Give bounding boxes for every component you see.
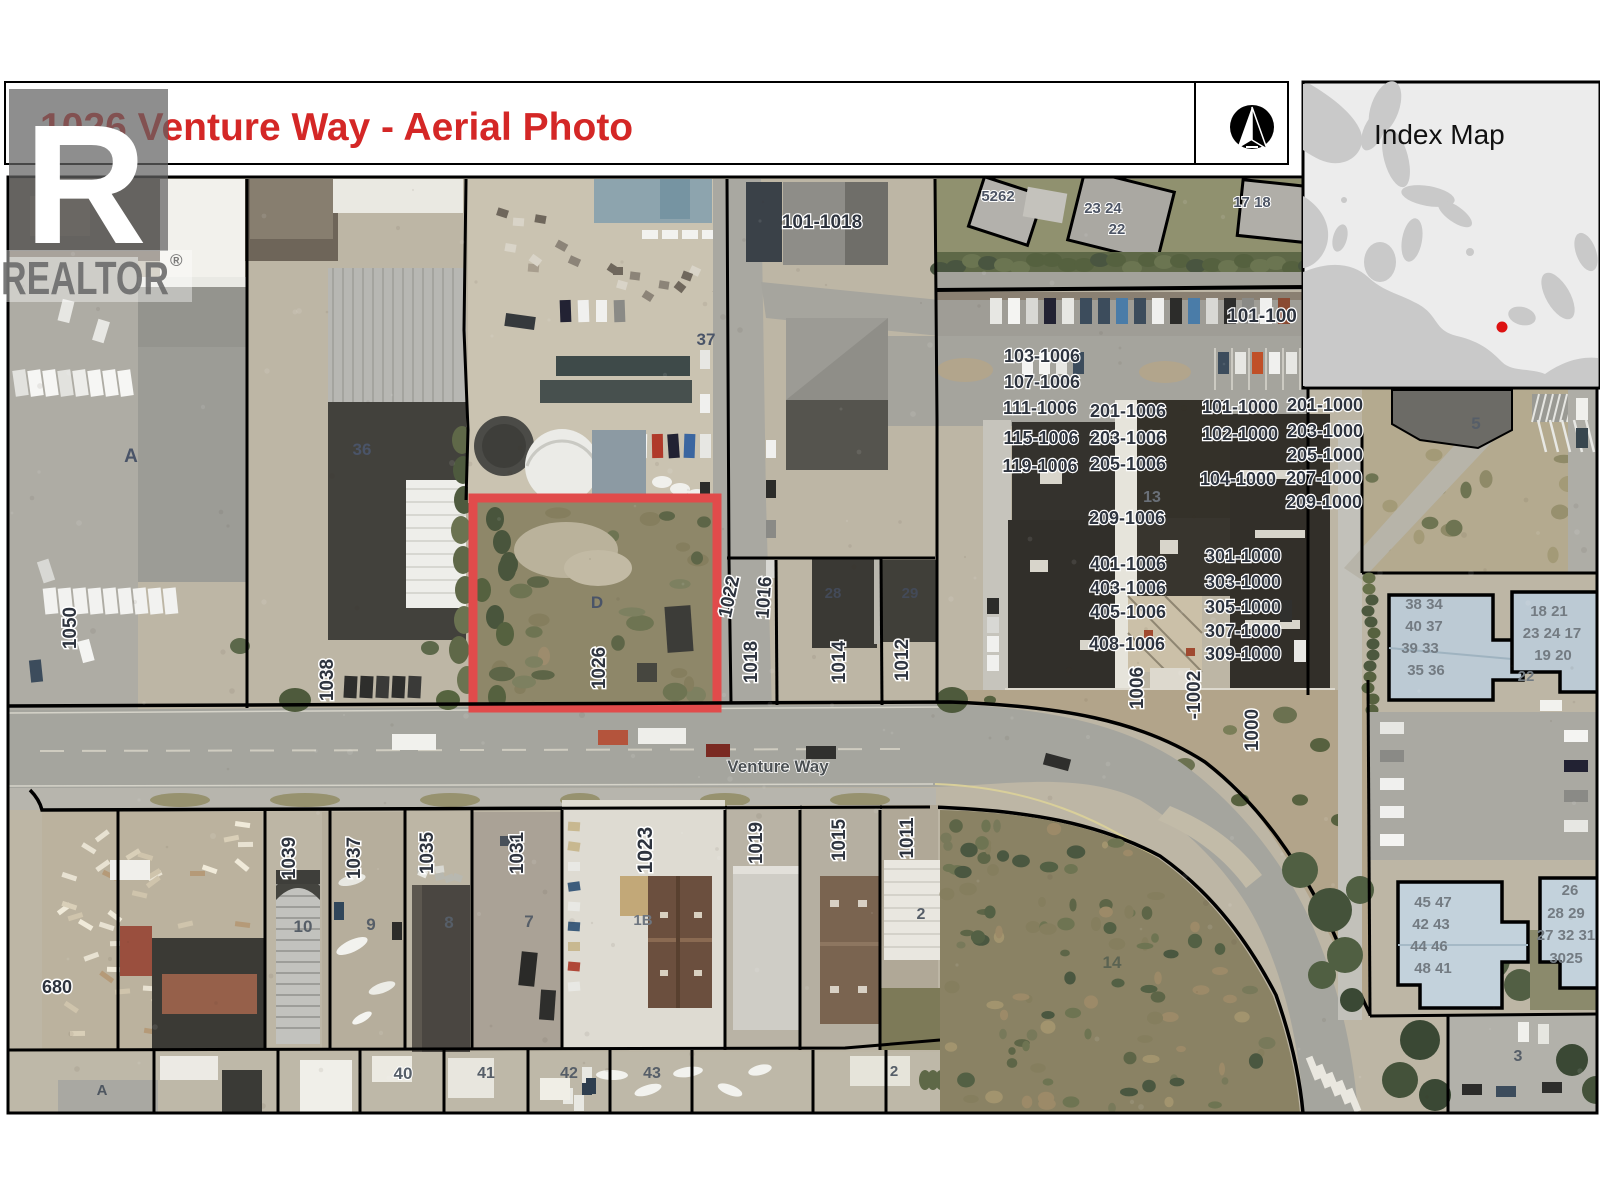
svg-text:201-1006: 201-1006 bbox=[1090, 401, 1166, 421]
svg-text:1015: 1015 bbox=[829, 818, 850, 861]
svg-text:307-1000: 307-1000 bbox=[1205, 621, 1281, 641]
svg-text:27 32 31: 27 32 31 bbox=[1537, 927, 1595, 944]
svg-text:205-1000: 205-1000 bbox=[1287, 445, 1363, 465]
svg-text:38 34: 38 34 bbox=[1405, 596, 1443, 613]
svg-text:205-1006: 205-1006 bbox=[1090, 454, 1166, 474]
svg-text:45 47: 45 47 bbox=[1414, 894, 1452, 911]
svg-text:Venture Way: Venture Way bbox=[727, 757, 829, 776]
svg-text:401-1006: 401-1006 bbox=[1090, 554, 1166, 574]
svg-text:®: ® bbox=[170, 251, 183, 270]
svg-text:42: 42 bbox=[560, 1065, 578, 1082]
svg-text:9: 9 bbox=[366, 915, 375, 934]
svg-text:309-1000: 309-1000 bbox=[1205, 644, 1281, 664]
svg-text:42 43: 42 43 bbox=[1412, 916, 1450, 933]
svg-text:1018: 1018 bbox=[741, 641, 762, 683]
svg-text:101-1018: 101-1018 bbox=[782, 212, 862, 233]
svg-text:403-1006: 403-1006 bbox=[1090, 578, 1166, 598]
svg-text:23 24 17: 23 24 17 bbox=[1523, 625, 1581, 642]
svg-text:1019: 1019 bbox=[746, 822, 767, 864]
svg-text:1026: 1026 bbox=[589, 647, 610, 689]
svg-text:35 36: 35 36 bbox=[1407, 662, 1445, 679]
svg-text:209-1006: 209-1006 bbox=[1089, 508, 1165, 528]
svg-text:3025: 3025 bbox=[1549, 950, 1582, 967]
svg-text:A: A bbox=[97, 1082, 108, 1099]
svg-text:1B: 1B bbox=[633, 912, 652, 929]
svg-text:1006: 1006 bbox=[1127, 667, 1148, 709]
svg-text:111-1006: 111-1006 bbox=[1003, 398, 1077, 418]
svg-text:101-100: 101-100 bbox=[1227, 306, 1297, 327]
svg-text:209-1000: 209-1000 bbox=[1286, 492, 1362, 512]
svg-text:8: 8 bbox=[444, 913, 453, 932]
svg-text:1014: 1014 bbox=[829, 640, 850, 683]
svg-text:1035: 1035 bbox=[417, 831, 438, 874]
svg-text:680: 680 bbox=[42, 977, 72, 997]
svg-text:102-1000: 102-1000 bbox=[1202, 424, 1278, 444]
svg-text:-1002: -1002 bbox=[1184, 671, 1205, 720]
svg-text:203-1000: 203-1000 bbox=[1287, 421, 1363, 441]
svg-text:104-1000: 104-1000 bbox=[1200, 469, 1276, 489]
svg-text:1016: 1016 bbox=[753, 576, 777, 620]
svg-text:41: 41 bbox=[477, 1065, 495, 1082]
svg-text:1038: 1038 bbox=[317, 659, 338, 701]
svg-text:115-1006: 115-1006 bbox=[1003, 428, 1078, 448]
svg-text:26: 26 bbox=[1562, 882, 1579, 899]
svg-text:28: 28 bbox=[825, 585, 842, 602]
svg-text:5: 5 bbox=[1471, 414, 1480, 433]
svg-text:Index Map: Index Map bbox=[1374, 119, 1505, 150]
svg-text:18 21: 18 21 bbox=[1530, 603, 1568, 620]
svg-text:29: 29 bbox=[902, 585, 919, 602]
svg-text:7: 7 bbox=[524, 912, 533, 931]
svg-text:36: 36 bbox=[353, 440, 372, 459]
svg-text:201-1000: 201-1000 bbox=[1287, 395, 1363, 415]
svg-text:1023: 1023 bbox=[634, 827, 657, 874]
svg-text:23 24: 23 24 bbox=[1084, 200, 1122, 217]
svg-text:103-1006: 103-1006 bbox=[1004, 346, 1080, 366]
svg-text:405-1006: 405-1006 bbox=[1090, 602, 1166, 622]
svg-text:44 46: 44 46 bbox=[1410, 938, 1448, 955]
svg-text:408-1006: 408-1006 bbox=[1089, 634, 1165, 654]
svg-text:REALTOR: REALTOR bbox=[1, 252, 169, 304]
svg-text:1012: 1012 bbox=[892, 639, 913, 681]
svg-text:10: 10 bbox=[294, 917, 313, 936]
svg-text:1000: 1000 bbox=[1242, 709, 1263, 751]
svg-text:1039: 1039 bbox=[279, 837, 300, 879]
svg-text:119-1006: 119-1006 bbox=[1002, 456, 1077, 476]
svg-text:40: 40 bbox=[394, 1064, 413, 1083]
svg-text:28 29: 28 29 bbox=[1547, 905, 1585, 922]
svg-text:39 33: 39 33 bbox=[1401, 640, 1439, 657]
svg-text:303-1000: 303-1000 bbox=[1205, 572, 1281, 592]
svg-text:14: 14 bbox=[1103, 953, 1122, 972]
svg-text:3: 3 bbox=[1514, 1048, 1523, 1065]
svg-text:1031: 1031 bbox=[507, 831, 528, 874]
svg-text:1037: 1037 bbox=[344, 837, 365, 879]
svg-text:22: 22 bbox=[1518, 668, 1535, 685]
svg-text:107-1006: 107-1006 bbox=[1004, 372, 1080, 392]
svg-text:305-1000: 305-1000 bbox=[1205, 597, 1281, 617]
svg-text:17 18: 17 18 bbox=[1233, 194, 1271, 211]
svg-text:22: 22 bbox=[1109, 221, 1126, 238]
svg-text:48 41: 48 41 bbox=[1414, 960, 1452, 977]
svg-text:203-1006: 203-1006 bbox=[1090, 428, 1166, 448]
svg-text:2: 2 bbox=[890, 1063, 898, 1080]
svg-text:D: D bbox=[591, 593, 603, 612]
svg-text:40 37: 40 37 bbox=[1405, 618, 1443, 635]
svg-text:101-1000: 101-1000 bbox=[1202, 397, 1278, 417]
svg-text:19 20: 19 20 bbox=[1534, 647, 1572, 664]
svg-text:1011: 1011 bbox=[897, 817, 918, 859]
svg-text:37: 37 bbox=[697, 330, 716, 349]
svg-text:43: 43 bbox=[643, 1065, 661, 1082]
svg-text:5262: 5262 bbox=[981, 188, 1014, 205]
svg-text:A: A bbox=[124, 446, 138, 467]
svg-text:2: 2 bbox=[917, 906, 926, 923]
svg-text:1050: 1050 bbox=[60, 607, 81, 649]
svg-text:13: 13 bbox=[1143, 489, 1161, 506]
svg-text:301-1000: 301-1000 bbox=[1205, 546, 1281, 566]
svg-text:207-1000: 207-1000 bbox=[1286, 468, 1362, 488]
